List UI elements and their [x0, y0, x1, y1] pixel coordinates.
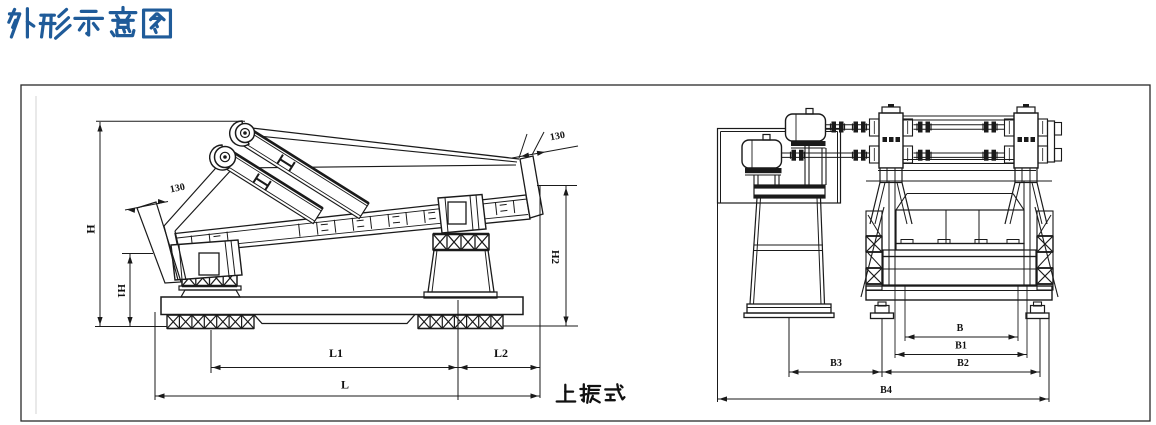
svg-text:L2: L2: [494, 346, 508, 360]
svg-text:B3: B3: [830, 358, 842, 369]
svg-text:H2: H2: [549, 250, 561, 265]
svg-text:B1: B1: [955, 341, 967, 352]
svg-text:B2: B2: [957, 358, 969, 369]
svg-text:H1: H1: [115, 284, 127, 298]
svg-text:B4: B4: [880, 385, 892, 396]
svg-text:B: B: [957, 323, 964, 334]
svg-text:H: H: [84, 224, 98, 234]
svg-text:L1: L1: [329, 346, 343, 360]
svg-text:L: L: [341, 378, 349, 392]
